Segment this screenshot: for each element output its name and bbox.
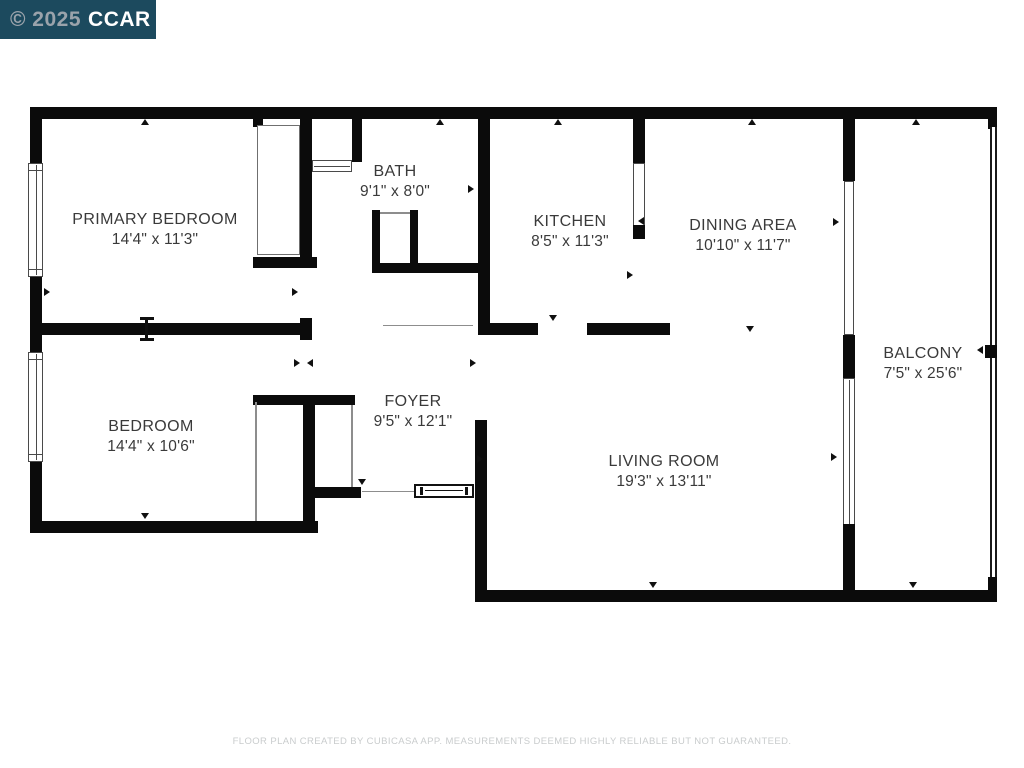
room-name: BALCONY (853, 344, 993, 364)
tick-up-icon (912, 119, 920, 125)
door-swing-icon (833, 218, 839, 226)
disclaimer-text: FLOOR PLAN CREATED BY CUBICASA APP. MEAS… (0, 736, 1024, 747)
tick-down-icon (649, 582, 657, 588)
wall-kitchen-bottom-left (478, 323, 538, 335)
room-name: PRIMARY BEDROOM (35, 210, 275, 230)
dining-balcony-opening (844, 181, 854, 335)
railing-bottom-cap (988, 577, 997, 592)
room-dimensions: 9'1" x 8'0" (325, 182, 465, 202)
tick-down-icon (141, 513, 149, 519)
bath-closet-door-line (380, 212, 410, 214)
floor-plan-canvas: © 2025 CCAR (0, 0, 1024, 768)
balcony-railing-lower (990, 358, 997, 577)
wall-dining-balcony-lower (843, 524, 855, 602)
wall-livingroom-bottom (475, 590, 997, 602)
wall-kitchen-dining-divider (633, 117, 645, 165)
window-primary-tick-bottom (29, 269, 42, 270)
room-name: BEDROOM (66, 417, 236, 437)
wall-foyer-bottom (313, 487, 361, 498)
door-swing-icon (294, 359, 300, 367)
entry-door-mid-line (425, 490, 463, 491)
watermark-brand: CCAR (88, 8, 151, 32)
room-label-balcony: BALCONY 7'5" x 25'6" (853, 344, 993, 384)
room-dimensions: 19'3" x 13'11" (579, 472, 749, 492)
door-swing-icon (292, 288, 298, 296)
room-label-primary-bedroom: PRIMARY BEDROOM 14'4" x 11'3" (35, 210, 275, 250)
wall-bedroom-bottom (30, 521, 318, 533)
entry-door (414, 484, 474, 498)
wall-livingroom-left (475, 420, 487, 602)
door-swing-icon (627, 271, 633, 279)
door-swing-icon (307, 359, 313, 367)
room-dimensions: 8'5" x 11'3" (495, 232, 645, 252)
window-primary-tick-top (29, 170, 42, 171)
tick-down-icon (358, 479, 366, 485)
door-swing-icon (470, 359, 476, 367)
window-bedroom-tick-top (29, 359, 42, 360)
room-name: FOYER (338, 392, 488, 412)
watermark-badge: © 2025 CCAR (0, 0, 156, 39)
wall-kitchen-bottom-right (587, 323, 670, 335)
wall-bath-closet-right (410, 210, 418, 270)
wall-dining-balcony-upper (843, 117, 855, 181)
room-name: DINING AREA (658, 216, 828, 236)
wall-bedroom-divider (30, 323, 312, 335)
room-dimensions: 7'5" x 25'6" (853, 364, 993, 384)
room-label-kitchen: KITCHEN 8'5" x 11'3" (495, 212, 645, 252)
tick-up-icon (554, 119, 562, 125)
room-label-living-room: LIVING ROOM 19'3" x 13'11" (579, 452, 749, 492)
tick-up-icon (436, 119, 444, 125)
room-label-foyer: FOYER 9'5" x 12'1" (338, 392, 488, 432)
room-dimensions: 9'5" x 12'1" (338, 412, 488, 432)
wall-outer-left-mid (30, 275, 42, 354)
entry-door-bar-left (420, 487, 423, 495)
balcony-sliding-door-line (849, 380, 850, 524)
bedroom-closet-door-line (255, 402, 257, 521)
wall-divider-endcap (300, 318, 312, 340)
room-dimensions: 14'4" x 10'6" (66, 437, 236, 457)
window-bedroom (28, 352, 43, 462)
door-swing-icon (44, 288, 50, 296)
room-name: LIVING ROOM (579, 452, 749, 472)
wall-hall-nook-top (253, 257, 317, 268)
tick-up-icon (748, 119, 756, 125)
room-label-bath: BATH 9'1" x 8'0" (325, 162, 465, 202)
room-label-dining-area: DINING AREA 10'10" x 11'7" (658, 216, 828, 256)
bedroom-door-marker (140, 317, 154, 341)
window-bedroom-center-line (36, 354, 37, 460)
room-name: KITCHEN (495, 212, 645, 232)
door-marker-cap-bottom (140, 338, 154, 341)
wall-bath-bottom (372, 263, 490, 273)
balcony-railing-upper (990, 127, 997, 345)
watermark-copyright: © 2025 (10, 8, 81, 32)
room-dimensions: 14'4" x 11'3" (35, 230, 275, 250)
tick-down-icon (549, 315, 557, 321)
room-name: BATH (325, 162, 465, 182)
hall-opening-line (383, 325, 473, 326)
wall-primary-bedroom-right (300, 117, 312, 257)
door-swing-icon (468, 185, 474, 193)
wall-bedroom-closet-divider (303, 395, 315, 533)
foyer-opening-line (362, 491, 414, 492)
tick-down-icon (909, 582, 917, 588)
wall-outer-left-upper (30, 107, 42, 165)
tick-up-icon (141, 119, 149, 125)
wall-kitchen-left (478, 117, 490, 335)
entry-door-bar-right (465, 487, 468, 495)
window-bedroom-tick-bottom (29, 454, 42, 455)
tick-down-icon (746, 326, 754, 332)
balcony-sliding-door (843, 378, 855, 526)
wall-bath-closet-left (372, 210, 380, 270)
wall-bath-upper-left (352, 117, 362, 162)
door-swing-icon (477, 455, 483, 463)
door-swing-icon (831, 453, 837, 461)
room-dimensions: 10'10" x 11'7" (658, 236, 828, 256)
room-label-bedroom: BEDROOM 14'4" x 10'6" (66, 417, 236, 457)
